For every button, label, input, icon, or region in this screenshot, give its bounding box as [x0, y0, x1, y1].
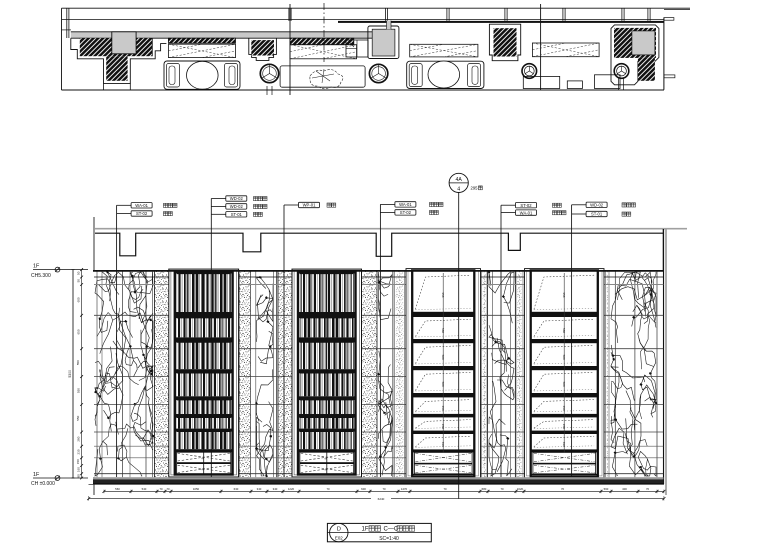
svg-text:ST-02: ST-02	[136, 211, 148, 216]
svg-text:70: 70	[561, 487, 565, 491]
svg-text:540: 540	[142, 487, 147, 491]
svg-text:280: 280	[76, 436, 80, 441]
svg-text:160: 160	[76, 467, 80, 472]
svg-text:WA-01: WA-01	[399, 202, 412, 207]
svg-text:295: 295	[471, 185, 479, 190]
svg-text:1470: 1470	[401, 487, 408, 491]
svg-text:280: 280	[562, 424, 566, 429]
svg-text:1220: 1220	[288, 487, 295, 491]
svg-text:400: 400	[622, 487, 627, 491]
svg-text:WA-01: WA-01	[135, 203, 148, 208]
svg-text:350: 350	[441, 292, 445, 297]
svg-text:4: 4	[457, 187, 460, 193]
svg-text:D: D	[337, 527, 341, 533]
svg-text:600: 600	[361, 487, 366, 491]
svg-text:70: 70	[443, 487, 447, 491]
svg-text:550: 550	[76, 415, 80, 420]
svg-text:580: 580	[482, 487, 487, 491]
svg-text:CH5.300: CH5.300	[31, 273, 51, 279]
svg-text:1620: 1620	[517, 487, 524, 491]
svg-text:70: 70	[166, 487, 170, 491]
svg-text:500: 500	[562, 355, 566, 360]
svg-text:ST-02: ST-02	[400, 210, 412, 215]
svg-text:ST-02: ST-02	[520, 203, 532, 208]
svg-text:5300: 5300	[68, 370, 72, 378]
svg-text:150: 150	[76, 459, 80, 464]
svg-text:330: 330	[441, 442, 445, 447]
svg-text:560: 560	[604, 487, 609, 491]
svg-text:70: 70	[646, 487, 650, 491]
svg-text:70: 70	[500, 487, 504, 491]
svg-text:WD-02: WD-02	[590, 203, 604, 208]
svg-text:WP-01: WP-01	[303, 203, 316, 208]
svg-text:ST-01: ST-01	[231, 212, 243, 217]
svg-text:500: 500	[562, 328, 566, 333]
svg-text:50: 50	[76, 279, 80, 283]
svg-text:340: 340	[257, 487, 262, 491]
svg-text:WD-02: WD-02	[230, 204, 244, 209]
svg-text:70: 70	[159, 487, 163, 491]
svg-text:500: 500	[441, 382, 445, 387]
svg-text:230: 230	[76, 449, 80, 454]
svg-text:C—C: C—C	[384, 527, 399, 533]
svg-text:1F: 1F	[362, 527, 369, 533]
svg-text:550: 550	[76, 360, 80, 365]
svg-text:550: 550	[76, 388, 80, 393]
svg-text:1F: 1F	[33, 263, 40, 269]
svg-text:600: 600	[76, 297, 80, 302]
svg-text:350: 350	[562, 292, 566, 297]
svg-text:CH ±0.000: CH ±0.000	[31, 481, 55, 487]
svg-text:280: 280	[441, 424, 445, 429]
svg-text:650: 650	[76, 329, 80, 334]
svg-text:6240: 6240	[378, 497, 385, 501]
svg-text:70: 70	[326, 487, 330, 491]
svg-text:ST-01: ST-01	[591, 212, 603, 217]
svg-text:350: 350	[441, 406, 445, 411]
svg-text:4A: 4A	[456, 177, 463, 183]
svg-text:WA-01: WA-01	[520, 210, 533, 215]
svg-text:560: 560	[115, 487, 120, 491]
svg-text:350: 350	[562, 406, 566, 411]
svg-text:WD-02: WD-02	[230, 196, 244, 201]
svg-text:630: 630	[234, 487, 239, 491]
svg-text:80: 80	[76, 474, 80, 478]
svg-text:340: 340	[273, 487, 278, 491]
svg-text:330: 330	[562, 442, 566, 447]
svg-text:50: 50	[76, 271, 80, 275]
svg-text:E02: E02	[335, 536, 343, 541]
svg-text:500: 500	[441, 355, 445, 360]
svg-text:1050: 1050	[193, 487, 200, 491]
svg-text:70: 70	[382, 487, 386, 491]
svg-text:500: 500	[441, 328, 445, 333]
svg-text:1F: 1F	[33, 472, 40, 478]
svg-text:SC=1:40: SC=1:40	[379, 536, 399, 542]
svg-text:500: 500	[562, 382, 566, 387]
